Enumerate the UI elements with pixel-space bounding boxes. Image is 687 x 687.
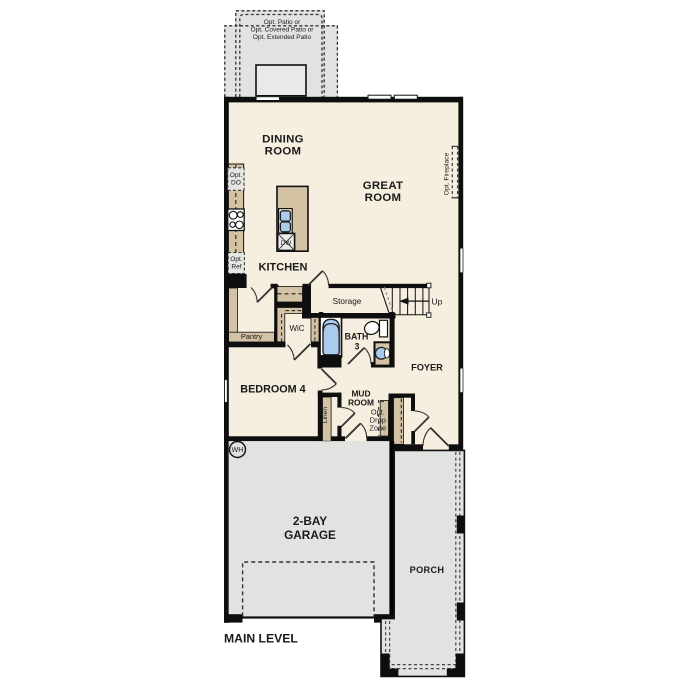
svg-text:Linen: Linen: [322, 407, 329, 423]
svg-text:ROOM: ROOM: [365, 192, 402, 204]
svg-text:Up: Up: [432, 296, 443, 306]
svg-text:Opt. Extended Patio: Opt. Extended Patio: [253, 34, 312, 41]
svg-text:DINING: DINING: [262, 134, 304, 146]
svg-text:Ref: Ref: [231, 264, 241, 271]
svg-text:Opt. Fireplace: Opt. Fireplace: [444, 152, 451, 195]
svg-text:WiC: WiC: [289, 324, 304, 333]
svg-text:2-BAY: 2-BAY: [293, 514, 327, 528]
svg-text:FOYER: FOYER: [411, 362, 443, 372]
svg-text:WH: WH: [232, 447, 244, 454]
svg-text:Opt.: Opt.: [230, 172, 243, 179]
svg-text:PORCH: PORCH: [410, 565, 445, 575]
svg-text:GREAT: GREAT: [363, 180, 404, 192]
svg-text:BEDROOM 4: BEDROOM 4: [240, 383, 305, 395]
svg-text:Pantry: Pantry: [241, 332, 263, 341]
svg-text:GARAGE: GARAGE: [284, 528, 336, 542]
svg-text:MAIN LEVEL: MAIN LEVEL: [224, 632, 298, 646]
svg-text:DO: DO: [231, 179, 241, 186]
svg-text:ROOM: ROOM: [265, 145, 302, 157]
svg-text:Storage: Storage: [333, 297, 362, 306]
svg-text:Opt. Covered Patio or: Opt. Covered Patio or: [251, 27, 315, 34]
svg-text:KITCHEN: KITCHEN: [259, 262, 308, 274]
svg-text:Opt.: Opt.: [230, 256, 243, 263]
svg-text:DW: DW: [281, 240, 293, 247]
svg-text:BATH: BATH: [345, 332, 369, 342]
svg-text:Zone: Zone: [369, 424, 386, 433]
svg-text:Opt. Patio or: Opt. Patio or: [264, 19, 301, 26]
svg-text:3: 3: [355, 342, 360, 352]
svg-text:ROOM: ROOM: [348, 398, 374, 408]
